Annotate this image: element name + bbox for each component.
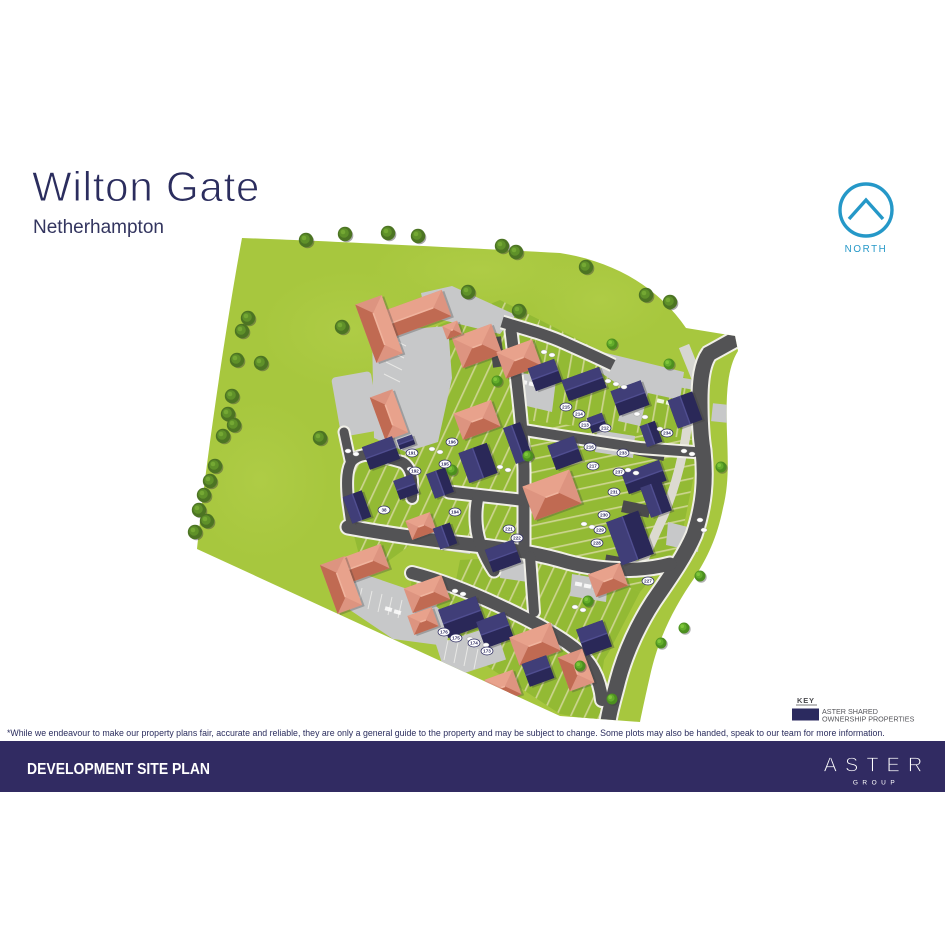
svg-text:*While we endeavour to make ou: *While we endeavour to make our property… <box>7 728 885 738</box>
svg-text:196: 196 <box>448 440 456 445</box>
svg-text:173: 173 <box>483 649 491 654</box>
svg-text:Netherhampton: Netherhampton <box>33 217 164 238</box>
svg-text:233: 233 <box>619 451 627 456</box>
svg-text:ASTER: ASTER <box>824 755 931 777</box>
svg-text:KEY: KEY <box>797 696 815 705</box>
svg-text:228: 228 <box>593 541 601 546</box>
svg-text:221: 221 <box>505 527 513 532</box>
svg-text:234: 234 <box>663 431 671 436</box>
svg-text:38: 38 <box>381 508 387 513</box>
svg-text:194: 194 <box>451 510 459 515</box>
svg-text:174: 174 <box>470 641 478 646</box>
svg-text:230: 230 <box>600 513 608 518</box>
svg-text:231: 231 <box>610 490 618 495</box>
svg-text:176: 176 <box>440 630 448 635</box>
svg-text:222: 222 <box>513 536 521 541</box>
svg-text:229: 229 <box>596 528 604 533</box>
svg-text:175: 175 <box>452 636 460 641</box>
svg-text:214: 214 <box>575 412 583 417</box>
svg-text:OWNERSHIP PROPERTIES: OWNERSHIP PROPERTIES <box>822 715 915 724</box>
svg-text:191: 191 <box>408 451 416 456</box>
svg-text:217: 217 <box>589 464 597 469</box>
svg-text:NORTH: NORTH <box>845 244 888 255</box>
svg-text:237: 237 <box>615 470 623 475</box>
svg-text:192: 192 <box>411 469 419 474</box>
svg-text:GROUP: GROUP <box>853 780 899 787</box>
svg-text:212: 212 <box>601 426 609 431</box>
svg-text:216: 216 <box>586 445 594 450</box>
svg-text:227: 227 <box>644 579 652 584</box>
svg-text:195: 195 <box>441 462 449 467</box>
svg-text:213: 213 <box>581 423 589 428</box>
svg-text:215: 215 <box>562 405 570 410</box>
svg-text:Wilton Gate: Wilton Gate <box>32 163 260 210</box>
svg-text:DEVELOPMENT SITE PLAN: DEVELOPMENT SITE PLAN <box>27 761 210 778</box>
